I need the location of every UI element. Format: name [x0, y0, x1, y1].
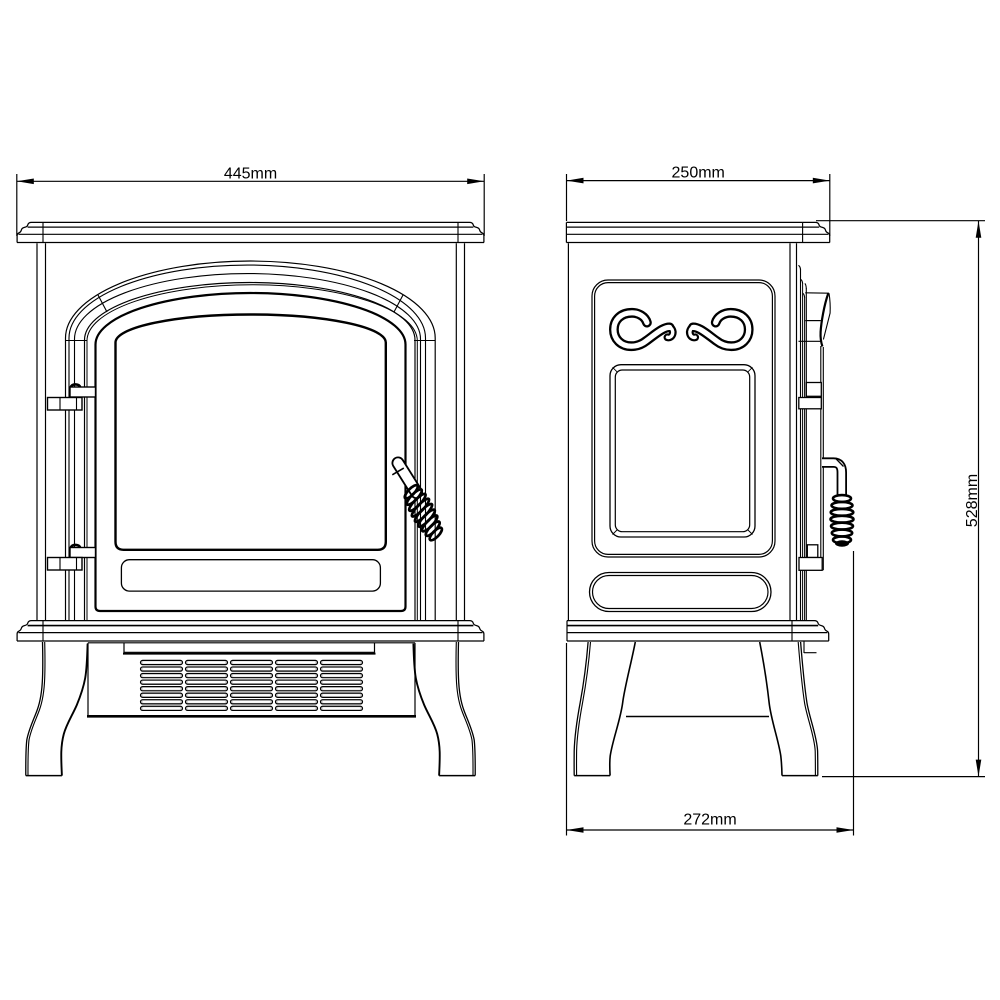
svg-text:445mm: 445mm: [224, 165, 277, 182]
svg-text:528mm: 528mm: [964, 474, 981, 527]
svg-text:272mm: 272mm: [683, 811, 736, 828]
svg-text:250mm: 250mm: [672, 165, 725, 182]
